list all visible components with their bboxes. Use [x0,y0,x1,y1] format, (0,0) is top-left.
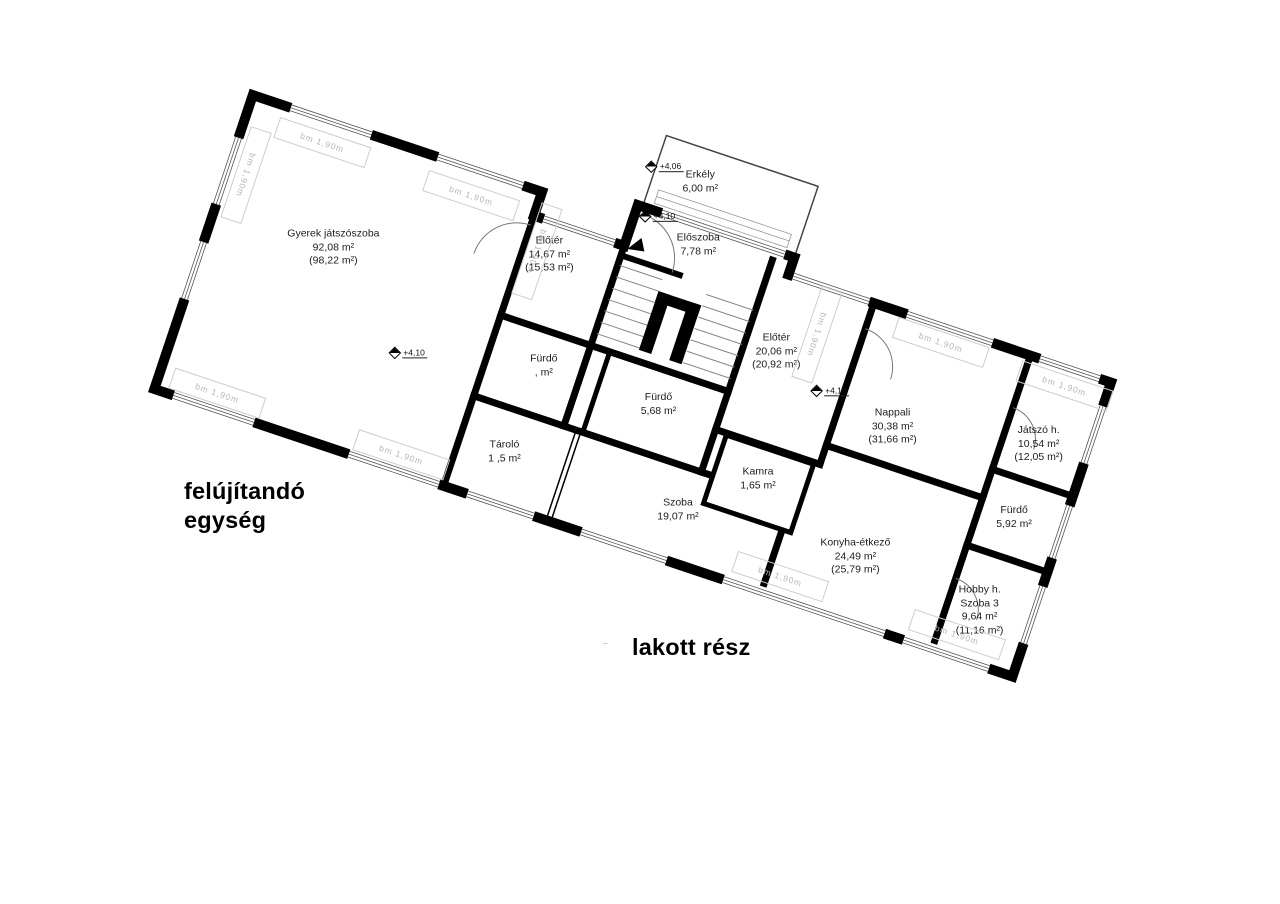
room-label-konyha-etkezo: Konyha-étkező24,49 m²(25,79 m²) [785,536,925,577]
floorplan-page: Gyerek játszószoba92,08 m²(98,22 m²) Elő… [0,0,1280,904]
level-marker-nappali: +4,10 [812,385,849,396]
room-label-furdo-c: Fürdő5,92 m² [944,504,1084,531]
level-flag-icon [639,210,652,223]
room-label-jatszo-h: Játszó h.10,54 m²(12,05 m²) [969,424,1109,465]
floorplan-canvas: Gyerek játszószoba92,08 m²(98,22 m²) Elő… [150,5,1146,692]
room-label-furdo-b: Fürdő5,68 m² [589,391,729,418]
level-marker-eloszoba: +4,10 [641,211,678,222]
caption-occupied-part: lakott rész [632,633,750,662]
room-label-eloszoba: Előszoba7,78 m² [628,231,768,258]
level-flag-icon [388,347,401,360]
room-label-kamra: Kamra1,65 m² [688,465,828,492]
level-marker-gyerek: +4,10 [390,347,427,358]
room-label-furdo-a: Fürdő, m² [474,353,614,380]
level-marker-erkely: +4,06 [647,161,684,172]
room-label-gyerek-jatszoszoba: Gyerek játszószoba92,08 m²(98,22 m²) [263,228,403,269]
room-label-nappali: Nappali30,38 m²(31,66 m²) [823,406,963,447]
level-flag-icon [645,160,658,173]
caption-unit-to-renovate: felújítandó egység [184,477,344,534]
room-label-tarolo: Tároló1 ,5 m² [434,438,574,465]
tiny-dash-mark: ‒ [603,639,607,648]
room-label-szoba: Szoba19,07 m² [608,497,748,524]
level-flag-icon [810,384,823,397]
